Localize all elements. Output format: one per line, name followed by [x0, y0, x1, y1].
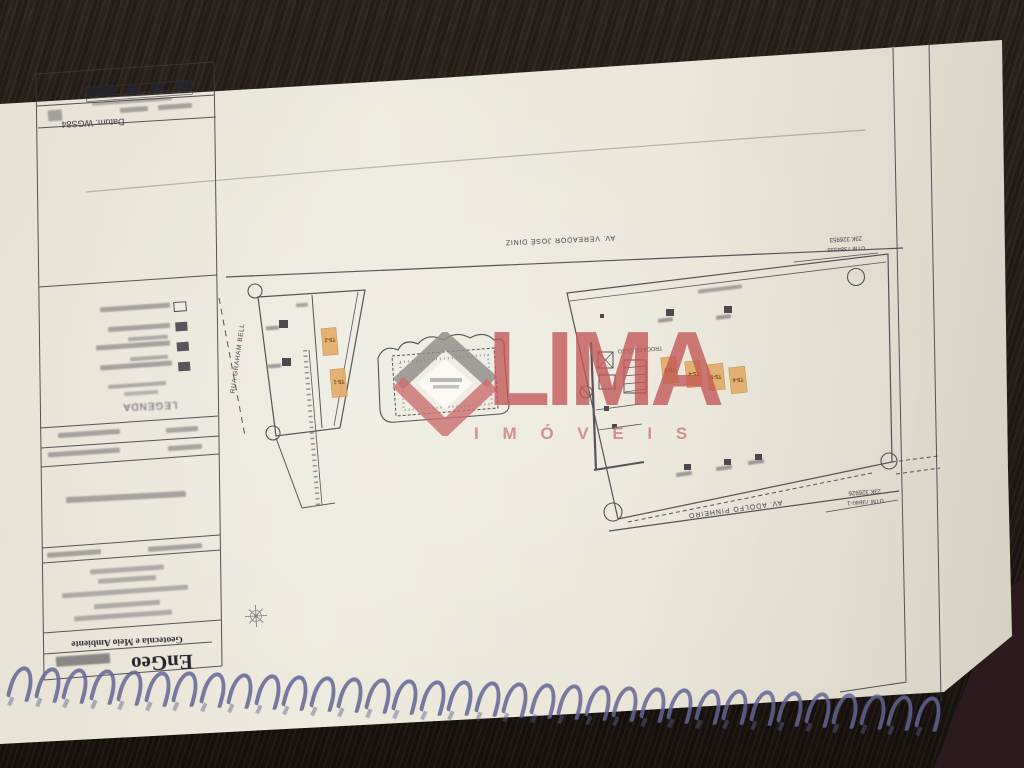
binding-loop: [446, 678, 477, 717]
binding-loop: [913, 693, 944, 732]
binding-loop: [363, 675, 394, 714]
binding-loop: [418, 677, 449, 716]
binding-loop: [88, 666, 119, 705]
binding-loop: [253, 672, 284, 711]
binding-loop: [501, 680, 532, 719]
binding-loop: [61, 665, 92, 704]
binding-loop: [748, 688, 779, 727]
binding-loop: [721, 687, 752, 726]
binding-loop: [6, 664, 37, 703]
binding-loop: [143, 668, 174, 707]
binding-loop: [473, 679, 504, 718]
binding-loop: [776, 689, 807, 728]
binding-loop: [528, 681, 559, 720]
binding-loop: [638, 684, 669, 723]
binding-loop: [336, 674, 367, 713]
binding-loop: [858, 691, 889, 730]
binding-loop: [666, 685, 697, 724]
binding-loop: [226, 671, 257, 710]
binding-loop: [281, 673, 312, 712]
binding-loop: [886, 692, 917, 731]
binding-loop: [583, 682, 614, 721]
binding-loop: [831, 691, 862, 730]
binding-loop: [171, 669, 202, 708]
binding-loop: [556, 682, 587, 721]
binding-loop: [803, 690, 834, 729]
binding-loop: [391, 676, 422, 715]
binding-loop: [198, 670, 229, 709]
binding-loop: [116, 667, 147, 706]
binding-loop: [693, 686, 724, 725]
photo-background: AV. VEREADOR JOSÉ DINIZ RUA GRAHAM BELL …: [0, 0, 1024, 768]
binding-loop: [308, 673, 339, 712]
spiral-binding: [0, 0, 1024, 768]
binding-loop: [33, 664, 64, 703]
binding-loop: [611, 683, 642, 722]
